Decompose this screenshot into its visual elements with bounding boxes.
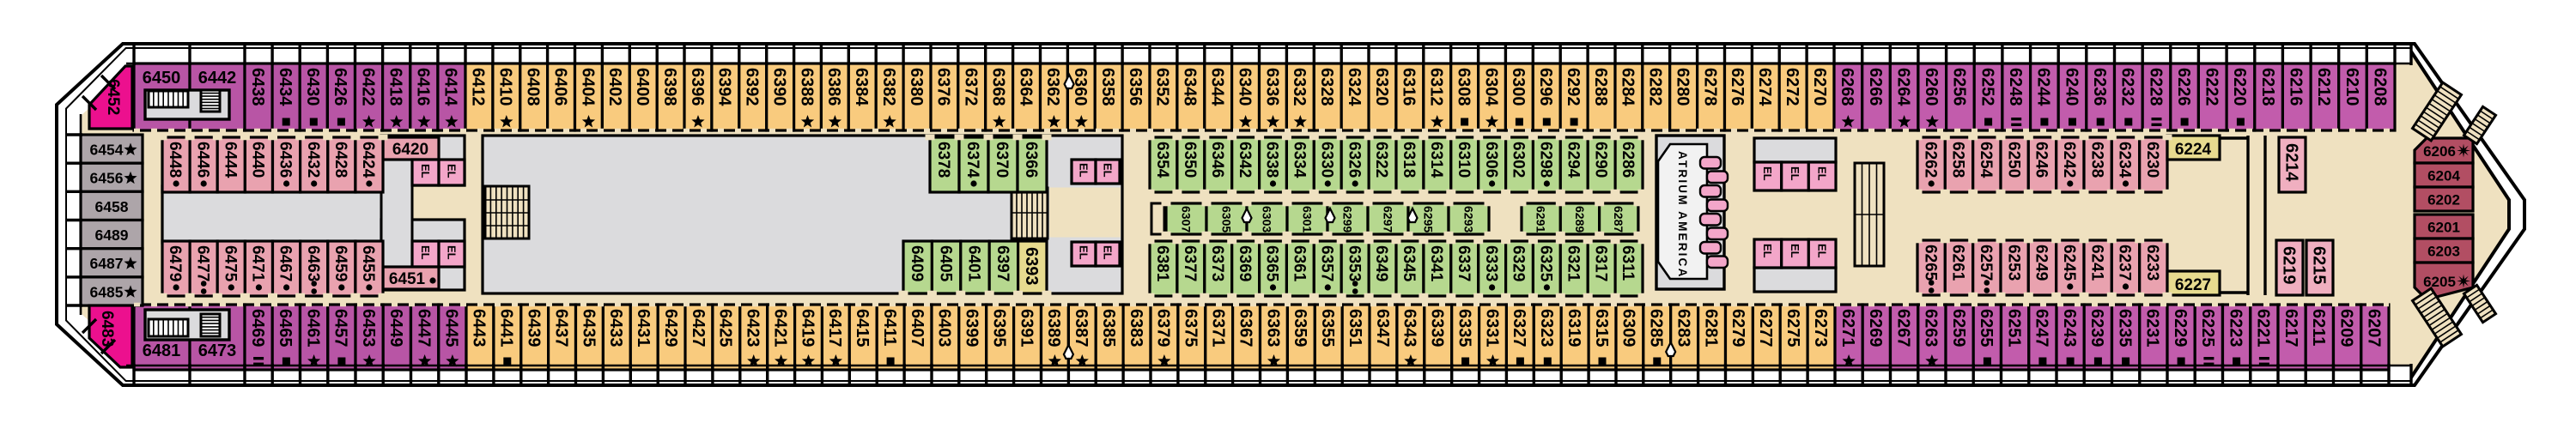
svg-text:6295: 6295	[1422, 206, 1436, 233]
svg-text:6257: 6257	[1977, 245, 1995, 281]
svg-text:6203: 6203	[2427, 244, 2460, 260]
svg-text:6314: 6314	[1427, 142, 1445, 178]
svg-text:6443: 6443	[470, 309, 489, 347]
svg-text:6485: 6485	[90, 283, 124, 300]
svg-text:6210: 6210	[2342, 68, 2361, 106]
svg-text:6410: 6410	[496, 68, 515, 106]
svg-text:6479: 6479	[166, 245, 184, 281]
svg-text:6278: 6278	[1700, 68, 1719, 106]
svg-text:6202: 6202	[2427, 192, 2460, 208]
svg-text:6471: 6471	[249, 245, 267, 282]
svg-text:6345: 6345	[1400, 245, 1418, 282]
svg-text:6355: 6355	[1318, 309, 1337, 347]
svg-text:6327: 6327	[1510, 309, 1528, 347]
svg-text:6315: 6315	[1592, 309, 1611, 347]
svg-text:6338: 6338	[1263, 142, 1281, 178]
svg-text:6293: 6293	[1462, 206, 1476, 233]
svg-text:6422: 6422	[358, 68, 377, 106]
svg-text:6390: 6390	[769, 68, 788, 106]
svg-text:6445: 6445	[442, 309, 461, 347]
svg-text:6283: 6283	[1674, 309, 1693, 347]
svg-text:6256: 6256	[1950, 68, 1969, 106]
svg-text:6266: 6266	[1866, 68, 1885, 106]
svg-text:6437: 6437	[551, 309, 570, 347]
svg-text:6286: 6286	[1619, 142, 1637, 178]
svg-text:6251: 6251	[2004, 309, 2023, 347]
svg-text:6370: 6370	[993, 142, 1011, 178]
svg-text:6280: 6280	[1674, 68, 1692, 106]
svg-text:6402: 6402	[605, 68, 624, 106]
svg-text:6401: 6401	[965, 245, 983, 282]
svg-text:6351: 6351	[1346, 309, 1364, 347]
svg-text:6457: 6457	[331, 309, 350, 347]
svg-text:6332: 6332	[1290, 68, 1309, 106]
svg-text:6228: 6228	[2146, 68, 2165, 106]
svg-text:6371: 6371	[1209, 309, 1228, 347]
svg-text:6430: 6430	[303, 68, 322, 106]
svg-text:6204: 6204	[2427, 168, 2460, 184]
svg-text:6285: 6285	[1647, 309, 1666, 347]
svg-text:6349: 6349	[1372, 245, 1390, 281]
svg-text:6307: 6307	[1180, 206, 1194, 233]
svg-text:EL: EL	[1077, 245, 1090, 260]
svg-text:6428: 6428	[331, 142, 349, 178]
svg-text:6366: 6366	[1022, 142, 1040, 178]
svg-text:6459: 6459	[331, 245, 349, 281]
svg-text:6262: 6262	[1921, 142, 1939, 178]
svg-text:6452: 6452	[104, 79, 122, 115]
svg-text:6238: 6238	[2087, 142, 2105, 178]
svg-text:6208: 6208	[2371, 68, 2390, 106]
svg-text:6247: 6247	[2032, 309, 2051, 347]
svg-text:6417: 6417	[825, 309, 844, 347]
svg-text:6316: 6316	[1400, 68, 1419, 106]
svg-text:6461: 6461	[303, 309, 322, 347]
svg-text:6263: 6263	[1922, 309, 1941, 347]
svg-text:6302: 6302	[1510, 142, 1528, 178]
svg-text:6347: 6347	[1373, 309, 1392, 347]
svg-text:6271: 6271	[1838, 309, 1857, 347]
svg-text:6224: 6224	[2175, 141, 2212, 159]
svg-text:6324: 6324	[1345, 68, 1364, 106]
svg-text:6441: 6441	[497, 309, 516, 347]
svg-text:6348: 6348	[1181, 68, 1200, 106]
svg-text:6415: 6415	[853, 309, 872, 347]
svg-text:6335: 6335	[1455, 309, 1473, 347]
svg-text:6429: 6429	[661, 309, 680, 347]
svg-text:6274: 6274	[1755, 68, 1774, 106]
svg-text:6253: 6253	[2004, 245, 2022, 281]
svg-text:6233: 6233	[2143, 245, 2161, 281]
svg-text:6323: 6323	[1537, 309, 1556, 347]
svg-text:6399: 6399	[963, 309, 981, 347]
svg-text:6300: 6300	[1509, 68, 1528, 106]
svg-text:6230: 6230	[2143, 142, 2161, 178]
svg-text:6442: 6442	[198, 69, 237, 88]
svg-text:6434: 6434	[276, 68, 295, 106]
svg-text:6364: 6364	[1016, 68, 1035, 106]
svg-text:6303: 6303	[1261, 206, 1274, 233]
svg-text:6389: 6389	[1044, 309, 1063, 347]
svg-text:6447: 6447	[414, 309, 433, 347]
svg-text:6360: 6360	[1071, 68, 1090, 106]
svg-text:6206: 6206	[2423, 143, 2456, 160]
svg-text:6275: 6275	[1783, 309, 1802, 347]
svg-text:EL: EL	[445, 164, 458, 178]
svg-text:6248: 6248	[2006, 68, 2025, 106]
svg-text:6397: 6397	[993, 245, 1012, 281]
svg-text:6467: 6467	[276, 245, 295, 281]
svg-text:6414: 6414	[441, 68, 460, 106]
svg-text:6240: 6240	[2062, 68, 2081, 106]
svg-text:6214: 6214	[2281, 143, 2300, 182]
svg-text:6368: 6368	[989, 68, 1008, 106]
svg-text:6201: 6201	[2427, 220, 2460, 236]
svg-text:6356: 6356	[1126, 68, 1145, 106]
svg-text:6249: 6249	[2032, 245, 2050, 281]
svg-text:6292: 6292	[1564, 68, 1583, 106]
svg-text:EL: EL	[1077, 163, 1090, 178]
svg-text:6246: 6246	[2032, 142, 2050, 178]
svg-text:6375: 6375	[1182, 309, 1200, 347]
svg-text:6379: 6379	[1154, 309, 1173, 347]
svg-text:6245: 6245	[2060, 245, 2078, 281]
svg-text:6236: 6236	[2090, 68, 2109, 106]
svg-text:6372: 6372	[962, 68, 981, 106]
svg-text:6272: 6272	[1783, 68, 1801, 106]
svg-text:6211: 6211	[2309, 309, 2328, 346]
svg-text:6451: 6451	[389, 270, 426, 288]
svg-text:6444: 6444	[222, 142, 240, 178]
svg-text:6377: 6377	[1181, 245, 1199, 281]
svg-text:6436: 6436	[276, 142, 295, 178]
svg-text:6336: 6336	[1262, 68, 1281, 106]
svg-text:6267: 6267	[1893, 309, 1912, 347]
svg-text:6326: 6326	[1345, 142, 1363, 178]
svg-text:6421: 6421	[770, 309, 789, 347]
svg-text:6329: 6329	[1510, 245, 1528, 281]
svg-text:EL: EL	[1816, 166, 1829, 181]
svg-text:6308: 6308	[1454, 68, 1473, 106]
svg-text:6382: 6382	[879, 68, 898, 106]
svg-text:6391: 6391	[1017, 309, 1036, 347]
svg-text:6435: 6435	[579, 309, 598, 347]
svg-text:6265: 6265	[1921, 245, 1939, 281]
svg-text:6254: 6254	[1977, 142, 1995, 178]
svg-text:6322: 6322	[1372, 142, 1390, 178]
svg-text:EL: EL	[1761, 166, 1774, 181]
svg-text:6241: 6241	[2087, 245, 2105, 281]
svg-text:6320: 6320	[1372, 68, 1391, 106]
svg-text:6448: 6448	[166, 142, 184, 178]
svg-text:6301: 6301	[1301, 206, 1315, 233]
svg-text:6361: 6361	[1291, 245, 1309, 282]
svg-text:6296: 6296	[1536, 68, 1555, 106]
svg-text:6279: 6279	[1728, 309, 1747, 347]
svg-text:6475: 6475	[222, 245, 240, 282]
svg-text:6359: 6359	[1291, 309, 1309, 347]
svg-text:6223: 6223	[2226, 309, 2245, 347]
svg-text:6261: 6261	[1949, 245, 1967, 281]
svg-text:6400: 6400	[633, 68, 652, 106]
svg-text:EL: EL	[419, 245, 432, 260]
svg-text:6317: 6317	[1591, 245, 1609, 281]
svg-text:6403: 6403	[935, 309, 954, 347]
svg-text:6408: 6408	[524, 68, 543, 106]
svg-text:6287: 6287	[1612, 206, 1625, 233]
svg-text:6229: 6229	[2171, 309, 2190, 347]
svg-text:6205: 6205	[2423, 274, 2456, 290]
svg-text:EL: EL	[1761, 244, 1774, 258]
svg-text:6222: 6222	[2202, 68, 2221, 106]
svg-text:6225: 6225	[2198, 309, 2217, 347]
svg-text:EL: EL	[1101, 163, 1114, 178]
svg-text:6291: 6291	[1534, 206, 1548, 233]
svg-text:6395: 6395	[990, 309, 1009, 347]
svg-text:6207: 6207	[2365, 309, 2384, 347]
svg-text:6252: 6252	[1978, 68, 1996, 106]
svg-text:6258: 6258	[1949, 142, 1967, 178]
svg-text:6297: 6297	[1382, 206, 1395, 233]
svg-text:6341: 6341	[1427, 245, 1445, 282]
svg-text:6342: 6342	[1236, 142, 1254, 178]
svg-text:6243: 6243	[2060, 309, 2079, 347]
svg-text:6282: 6282	[1646, 68, 1665, 106]
svg-text:6384: 6384	[852, 68, 871, 106]
svg-text:6407: 6407	[908, 309, 927, 347]
svg-text:6227: 6227	[2175, 276, 2211, 294]
svg-text:6333: 6333	[1482, 245, 1500, 281]
svg-text:EL: EL	[445, 245, 458, 260]
svg-text:6489: 6489	[95, 227, 129, 244]
svg-text:6260: 6260	[1922, 68, 1941, 106]
svg-text:6411: 6411	[880, 309, 899, 346]
svg-text:6237: 6237	[2116, 245, 2134, 281]
svg-text:6387: 6387	[1072, 309, 1091, 347]
svg-text:EL: EL	[1101, 245, 1114, 260]
svg-text:6481: 6481	[143, 341, 181, 360]
svg-text:6255: 6255	[1977, 309, 1996, 347]
svg-text:6331: 6331	[1482, 309, 1501, 347]
svg-text:6339: 6339	[1428, 309, 1447, 347]
svg-text:6242: 6242	[2060, 142, 2078, 178]
svg-text:6343: 6343	[1400, 309, 1419, 347]
svg-text:6453: 6453	[359, 309, 378, 347]
svg-text:6469: 6469	[248, 309, 267, 347]
svg-text:6473: 6473	[198, 341, 237, 360]
svg-text:6439: 6439	[525, 309, 544, 347]
svg-text:6269: 6269	[1866, 309, 1885, 347]
svg-text:6386: 6386	[824, 68, 843, 106]
svg-text:6446: 6446	[193, 142, 211, 178]
svg-text:6220: 6220	[2230, 68, 2249, 106]
svg-text:6456: 6456	[90, 170, 124, 187]
svg-text:6405: 6405	[936, 245, 954, 282]
svg-text:6373: 6373	[1208, 245, 1226, 281]
svg-text:6418: 6418	[386, 68, 405, 106]
svg-text:6328: 6328	[1317, 68, 1336, 106]
svg-text:ATRIUM AMERICA: ATRIUM AMERICA	[1676, 151, 1689, 279]
svg-text:6455: 6455	[359, 245, 377, 282]
svg-text:6363: 6363	[1263, 309, 1282, 347]
svg-text:6432: 6432	[304, 142, 322, 178]
svg-text:6281: 6281	[1701, 309, 1720, 347]
svg-text:6294: 6294	[1564, 142, 1582, 178]
svg-text:6380: 6380	[907, 68, 926, 106]
svg-text:6310: 6310	[1455, 142, 1473, 178]
svg-text:6217: 6217	[2281, 309, 2300, 347]
svg-text:6337: 6337	[1455, 245, 1473, 281]
svg-text:6385: 6385	[1099, 309, 1118, 347]
svg-text:6383: 6383	[1127, 309, 1145, 347]
svg-text:6259: 6259	[1949, 309, 1968, 347]
svg-text:6244: 6244	[2034, 68, 2053, 106]
svg-text:EL: EL	[419, 164, 432, 178]
svg-text:6358: 6358	[1098, 68, 1117, 106]
svg-text:6234: 6234	[2116, 142, 2134, 178]
svg-text:6369: 6369	[1236, 245, 1254, 281]
svg-text:6318: 6318	[1400, 142, 1418, 178]
svg-text:EL: EL	[1789, 244, 1801, 258]
svg-text:6396: 6396	[688, 68, 707, 106]
svg-text:6420: 6420	[392, 141, 428, 159]
svg-text:6304: 6304	[1481, 68, 1500, 106]
svg-text:6340: 6340	[1235, 68, 1254, 106]
svg-text:6487: 6487	[90, 255, 124, 272]
svg-text:6388: 6388	[797, 68, 816, 106]
svg-text:6449: 6449	[386, 309, 405, 347]
svg-text:6392: 6392	[743, 68, 762, 106]
svg-text:6212: 6212	[2314, 68, 2333, 106]
svg-text:6412: 6412	[469, 68, 488, 106]
svg-text:6264: 6264	[1893, 68, 1912, 106]
svg-text:6398: 6398	[660, 68, 679, 106]
svg-text:6367: 6367	[1236, 309, 1255, 347]
svg-text:6235: 6235	[2115, 309, 2134, 347]
svg-text:EL: EL	[1789, 166, 1801, 181]
svg-text:6450: 6450	[143, 69, 181, 88]
svg-text:6276: 6276	[1728, 68, 1747, 106]
svg-text:6394: 6394	[715, 68, 734, 106]
svg-text:6334: 6334	[1291, 142, 1309, 178]
svg-text:6289: 6289	[1573, 206, 1587, 233]
svg-text:6353: 6353	[1345, 245, 1363, 281]
svg-text:6231: 6231	[2143, 309, 2162, 347]
svg-text:6290: 6290	[1591, 142, 1609, 178]
svg-text:6309: 6309	[1619, 309, 1638, 347]
svg-text:6209: 6209	[2336, 309, 2355, 347]
svg-text:6321: 6321	[1564, 245, 1582, 282]
svg-text:6215: 6215	[2309, 246, 2328, 285]
svg-text:6216: 6216	[2287, 68, 2306, 106]
svg-text:6273: 6273	[1811, 309, 1830, 347]
svg-text:6463: 6463	[304, 245, 322, 281]
svg-text:6425: 6425	[716, 309, 735, 347]
svg-text:6357: 6357	[1317, 245, 1335, 281]
svg-text:6306: 6306	[1482, 142, 1500, 178]
svg-text:6362: 6362	[1043, 68, 1062, 106]
svg-text:6424: 6424	[359, 142, 377, 178]
svg-text:6232: 6232	[2118, 68, 2137, 106]
svg-text:6218: 6218	[2258, 68, 2277, 106]
svg-text:6221: 6221	[2254, 309, 2273, 347]
svg-text:6239: 6239	[2087, 309, 2106, 347]
svg-text:6346: 6346	[1208, 142, 1226, 178]
svg-text:6250: 6250	[2004, 142, 2022, 178]
svg-text:6344: 6344	[1208, 68, 1227, 106]
svg-text:6305: 6305	[1220, 206, 1234, 233]
svg-text:6270: 6270	[1810, 68, 1829, 106]
svg-text:6365: 6365	[1263, 245, 1281, 282]
svg-text:6426: 6426	[331, 68, 349, 106]
svg-text:6440: 6440	[249, 142, 267, 178]
svg-text:6465: 6465	[276, 309, 295, 347]
svg-text:6268: 6268	[1838, 68, 1856, 106]
svg-text:6288: 6288	[1591, 68, 1610, 106]
svg-text:EL: EL	[1816, 244, 1829, 258]
svg-text:6319: 6319	[1564, 309, 1583, 347]
svg-text:6226: 6226	[2174, 68, 2193, 106]
svg-text:6325: 6325	[1537, 245, 1555, 282]
svg-text:6423: 6423	[744, 309, 762, 347]
svg-text:6378: 6378	[934, 142, 952, 178]
svg-text:6354: 6354	[1153, 142, 1171, 178]
svg-text:6352: 6352	[1153, 68, 1172, 106]
svg-text:6431: 6431	[634, 309, 653, 347]
svg-text:6311: 6311	[1619, 245, 1637, 281]
svg-text:6419: 6419	[798, 309, 817, 347]
svg-text:6350: 6350	[1181, 142, 1199, 178]
svg-text:6219: 6219	[2279, 246, 2298, 285]
svg-text:6454: 6454	[90, 142, 124, 159]
svg-text:6298: 6298	[1537, 142, 1555, 178]
svg-text:6312: 6312	[1427, 68, 1446, 106]
svg-text:6406: 6406	[550, 68, 569, 106]
svg-text:6393: 6393	[1022, 247, 1041, 286]
svg-text:6438: 6438	[248, 68, 267, 106]
svg-text:6299: 6299	[1341, 206, 1355, 233]
svg-text:6427: 6427	[689, 309, 708, 347]
svg-text:6409: 6409	[908, 245, 926, 281]
svg-text:6433: 6433	[606, 309, 625, 347]
svg-text:6374: 6374	[963, 142, 981, 178]
svg-text:6416: 6416	[414, 68, 433, 106]
svg-text:6477: 6477	[193, 245, 211, 281]
svg-text:6376: 6376	[934, 68, 953, 106]
svg-text:6284: 6284	[1619, 68, 1637, 106]
svg-text:6404: 6404	[578, 68, 597, 106]
svg-text:6277: 6277	[1756, 309, 1775, 347]
svg-text:6330: 6330	[1317, 142, 1335, 178]
svg-text:6381: 6381	[1153, 245, 1171, 282]
svg-text:6458: 6458	[95, 198, 129, 215]
